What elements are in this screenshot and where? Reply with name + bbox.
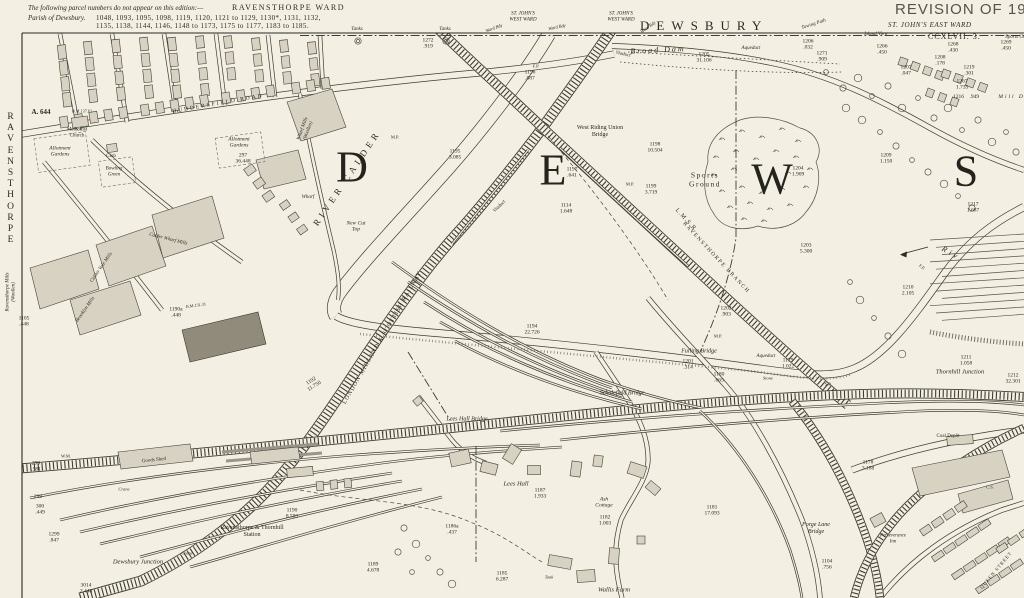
weir-stipple <box>930 332 1024 344</box>
garden-plots <box>34 132 265 188</box>
canal <box>612 46 1024 170</box>
edition-note-parish: Parish of Dewsbury. <box>28 14 85 22</box>
margin-ward-name-vertical: R A V E N S T H O R P E <box>3 112 18 246</box>
os-map-sheet: The following parcel numbers do not appe… <box>0 0 1024 598</box>
edition-note-numbers-1: 1048, 1093, 1095, 1098, 1119, 1120, 1121… <box>96 14 321 22</box>
map-title-dewsbury: DEWSBURY <box>640 18 768 34</box>
tanks <box>355 38 449 44</box>
edition-note-line1: The following parcel numbers do not appe… <box>28 4 203 12</box>
roads <box>22 34 1024 598</box>
sheet-number: CCXLVII. 3. <box>928 32 981 41</box>
canal <box>612 46 1024 170</box>
edition-note-numbers-2: 1135, 1138, 1144, 1146, 1148 to 1173, 11… <box>96 22 309 30</box>
river-calder <box>334 34 1024 375</box>
railways <box>0 20 1024 598</box>
trees <box>395 70 1019 588</box>
marsh-tufts <box>711 128 813 223</box>
sports-ground-outline <box>705 117 820 229</box>
revision-stamp: REVISION OF 19 <box>895 1 1024 18</box>
east-ward-label: ST. JOHN'S EAST WARD <box>888 21 972 29</box>
flow-arrow <box>900 247 928 258</box>
edition-note-ward: RAVENSTHORPE WARD <box>232 3 345 12</box>
map-canvas <box>0 0 1024 598</box>
